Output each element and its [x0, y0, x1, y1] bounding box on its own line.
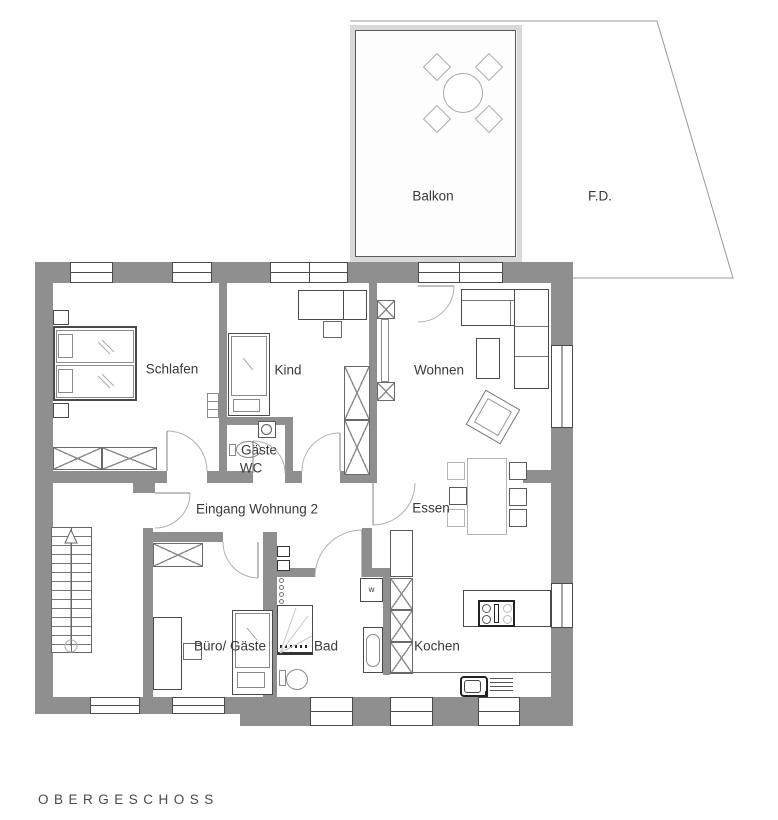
wall-wc-right: [285, 425, 293, 483]
window: [172, 262, 212, 283]
sofa-right: [514, 289, 549, 389]
wardrobe: [102, 447, 157, 470]
wall-buero-top: [153, 532, 223, 542]
sofa-cushion-line: [515, 326, 548, 327]
desk: [153, 617, 182, 690]
armchair-seat: [474, 398, 512, 436]
burner: [503, 604, 512, 613]
balcony-table: [443, 73, 483, 113]
tall-cabinet: [390, 578, 413, 610]
coffee-table: [476, 338, 500, 379]
shelf-unit: [207, 393, 219, 418]
room-label-schlafen: Schlafen: [146, 362, 199, 377]
wall-right: [551, 262, 573, 726]
window: [551, 583, 573, 628]
burner: [482, 604, 491, 613]
dining-table: [467, 458, 507, 535]
sideboard: [381, 319, 389, 382]
room-label-gaeste: Gäste: [241, 443, 277, 458]
desk-chair: [323, 321, 342, 338]
burner: [482, 615, 491, 624]
room-label-bad: Bad: [314, 639, 338, 654]
door-arc-essen: [373, 483, 415, 525]
desk-divider: [343, 291, 344, 319]
wall-hall-a: [53, 471, 167, 483]
door-arc-balcony: [418, 286, 454, 322]
toilet-bowl: [286, 669, 308, 690]
cooktop-control: [494, 604, 499, 623]
fridge-cabinet: [390, 530, 413, 577]
vanity-basin: [366, 634, 380, 667]
dining-chair: [449, 487, 467, 505]
balcony-door-opening: [418, 262, 460, 283]
window: [172, 697, 225, 714]
valve: [279, 585, 284, 590]
staircase: [51, 527, 92, 653]
wall-hall-c: [293, 471, 302, 483]
pillow: [237, 672, 265, 688]
dining-chair: [447, 462, 465, 480]
washer-symbol: w: [369, 585, 375, 594]
toilet-tank: [279, 670, 286, 686]
valve: [279, 599, 284, 604]
wall-kind-wohnen: [369, 283, 377, 471]
pillow: [58, 334, 73, 358]
burner: [503, 615, 512, 624]
nightstand: [53, 403, 69, 418]
radiator: [277, 560, 290, 571]
drainer: [490, 678, 513, 693]
floor-title: OBERGESCHOSS: [38, 792, 219, 807]
toilet-tank: [229, 444, 236, 456]
pillow: [58, 369, 73, 393]
mattress: [231, 336, 267, 396]
wardrobe: [153, 543, 203, 567]
radiator: [277, 546, 290, 557]
room-label-wc: WC: [240, 461, 263, 476]
wall-hall-nub: [133, 483, 155, 493]
wall-stairhall: [143, 528, 153, 697]
wall-schlafen-kind: [219, 283, 227, 471]
window: [551, 345, 573, 428]
washer: w: [360, 578, 383, 602]
window: [90, 697, 140, 714]
window: [310, 697, 353, 726]
tall-cabinet: [390, 642, 413, 674]
dining-chair: [509, 462, 527, 480]
wardrobe: [344, 420, 370, 475]
cooktop: [478, 600, 515, 627]
faucet: [485, 691, 488, 697]
valve: [279, 578, 284, 583]
room-label-buero: Büro/ Gäste: [194, 639, 266, 654]
wardrobe: [344, 366, 370, 420]
washbasin-bowl: [261, 424, 272, 435]
room-label-kochen: Kochen: [414, 639, 460, 654]
armchair: [466, 390, 521, 445]
wardrobe: [53, 447, 102, 470]
floor-plan: w Balkon F.D. Schlafen Kind Wohnen Gäste…: [0, 0, 778, 820]
pillow: [233, 399, 260, 412]
wall-kitchen: [383, 568, 390, 675]
window: [459, 262, 503, 283]
door-arc-buero: [223, 542, 258, 578]
desk: [298, 290, 367, 320]
door-arc-kind: [302, 433, 340, 471]
sofa-cushion-line: [515, 356, 548, 357]
window-divider: [309, 263, 310, 282]
nightstand: [53, 310, 69, 325]
sideboard-end: [377, 300, 395, 319]
room-label-balkon: Balkon: [412, 189, 453, 204]
room-label-wohnen: Wohnen: [414, 363, 464, 378]
door-arc-entrance: [155, 493, 190, 528]
door-arc-schlafen: [167, 431, 207, 471]
valve: [279, 592, 284, 597]
dining-chair: [509, 509, 527, 527]
window: [70, 262, 113, 283]
room-label-kind: Kind: [274, 363, 301, 378]
room-label-fd: F.D.: [588, 189, 612, 204]
dining-chair: [509, 488, 527, 506]
room-label-essen: Essen: [412, 501, 450, 516]
sideboard-end: [377, 382, 395, 401]
shower-door: [280, 645, 308, 648]
window: [390, 697, 433, 726]
wall-essen-stub: [523, 470, 551, 483]
sofa-cushion-line: [510, 301, 511, 325]
sink-bowl: [464, 680, 481, 693]
counter-edge: [390, 672, 551, 673]
window: [478, 697, 520, 726]
door-arc-bad: [315, 530, 362, 577]
room-label-eingang: Eingang Wohnung 2: [196, 502, 318, 517]
tall-cabinet: [390, 610, 413, 642]
